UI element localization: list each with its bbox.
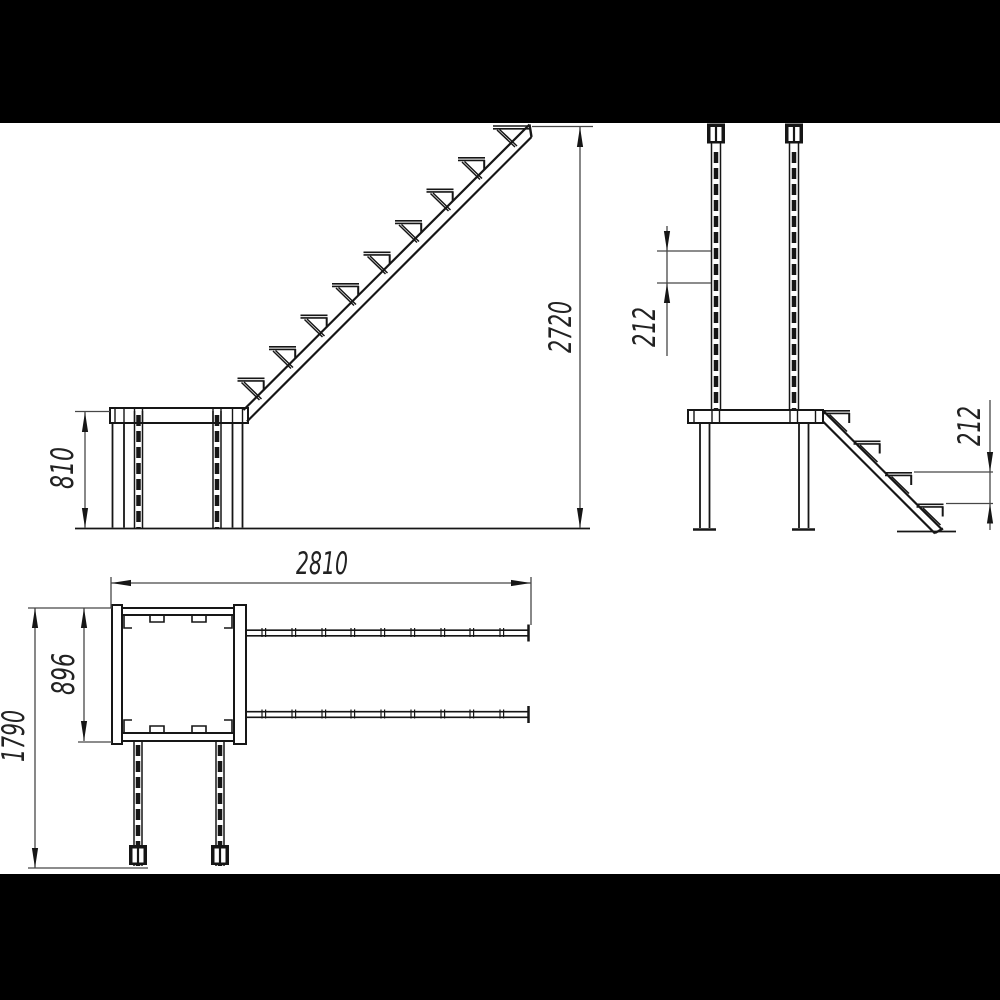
stair-technical-drawing: 810 2720 xyxy=(0,0,1000,1000)
post-foot-bracket xyxy=(211,845,229,865)
dim-label-2810: 2810 xyxy=(296,546,348,582)
dim-label-212-rise: 212 xyxy=(952,406,988,446)
dim-label-896: 896 xyxy=(46,653,82,695)
letterbox-bottom xyxy=(0,874,1000,1000)
dim-label-2720: 2720 xyxy=(543,301,579,353)
post-foot-bracket xyxy=(129,845,147,865)
technical-drawing-page: 810 2720 xyxy=(0,0,1000,1000)
dim-label-810: 810 xyxy=(45,447,81,489)
letterbox-top xyxy=(0,0,1000,123)
drawing-field xyxy=(0,123,1000,874)
dim-label-1790: 1790 xyxy=(0,710,32,762)
dim-label-212-holes: 212 xyxy=(627,307,663,347)
